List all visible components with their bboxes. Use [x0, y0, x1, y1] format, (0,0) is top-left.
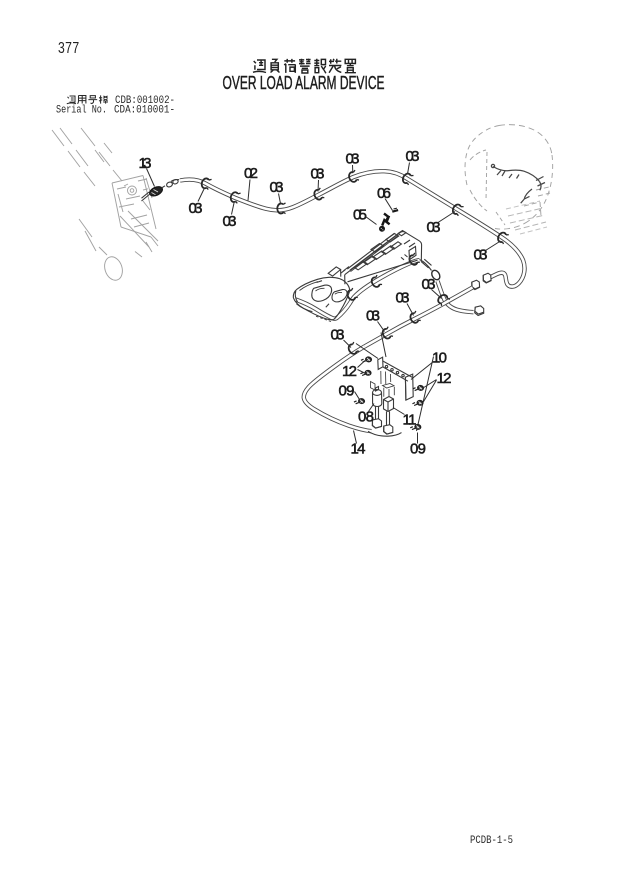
svg-text:OVER LOAD ALARM DEVICE: OVER LOAD ALARM DEVICE — [223, 73, 385, 93]
svg-text:14: 14 — [351, 441, 366, 458]
svg-text:03: 03 — [331, 327, 345, 344]
svg-text:03: 03 — [427, 219, 441, 236]
svg-text:03: 03 — [189, 200, 203, 217]
svg-text:03: 03 — [311, 166, 325, 183]
svg-text:03: 03 — [406, 148, 420, 165]
svg-text:03: 03 — [270, 179, 284, 196]
svg-text:12: 12 — [342, 363, 357, 380]
svg-text:13: 13 — [139, 155, 152, 172]
svg-text:03: 03 — [474, 247, 488, 264]
svg-text:02: 02 — [244, 165, 258, 182]
svg-text:10: 10 — [432, 350, 447, 367]
svg-text:05: 05 — [353, 207, 367, 224]
svg-text:03: 03 — [422, 276, 436, 293]
svg-text:Serial No.: Serial No. — [56, 105, 107, 117]
svg-text:09: 09 — [339, 383, 355, 400]
svg-text:CDA:010001-: CDA:010001- — [114, 105, 175, 117]
svg-text:PCDB-1-5: PCDB-1-5 — [470, 835, 513, 847]
svg-text:06: 06 — [377, 185, 391, 202]
svg-text:03: 03 — [346, 151, 360, 168]
svg-text:377: 377 — [58, 40, 80, 57]
svg-text:12: 12 — [437, 370, 452, 387]
svg-text:08: 08 — [358, 409, 374, 426]
svg-text:03: 03 — [223, 213, 237, 230]
